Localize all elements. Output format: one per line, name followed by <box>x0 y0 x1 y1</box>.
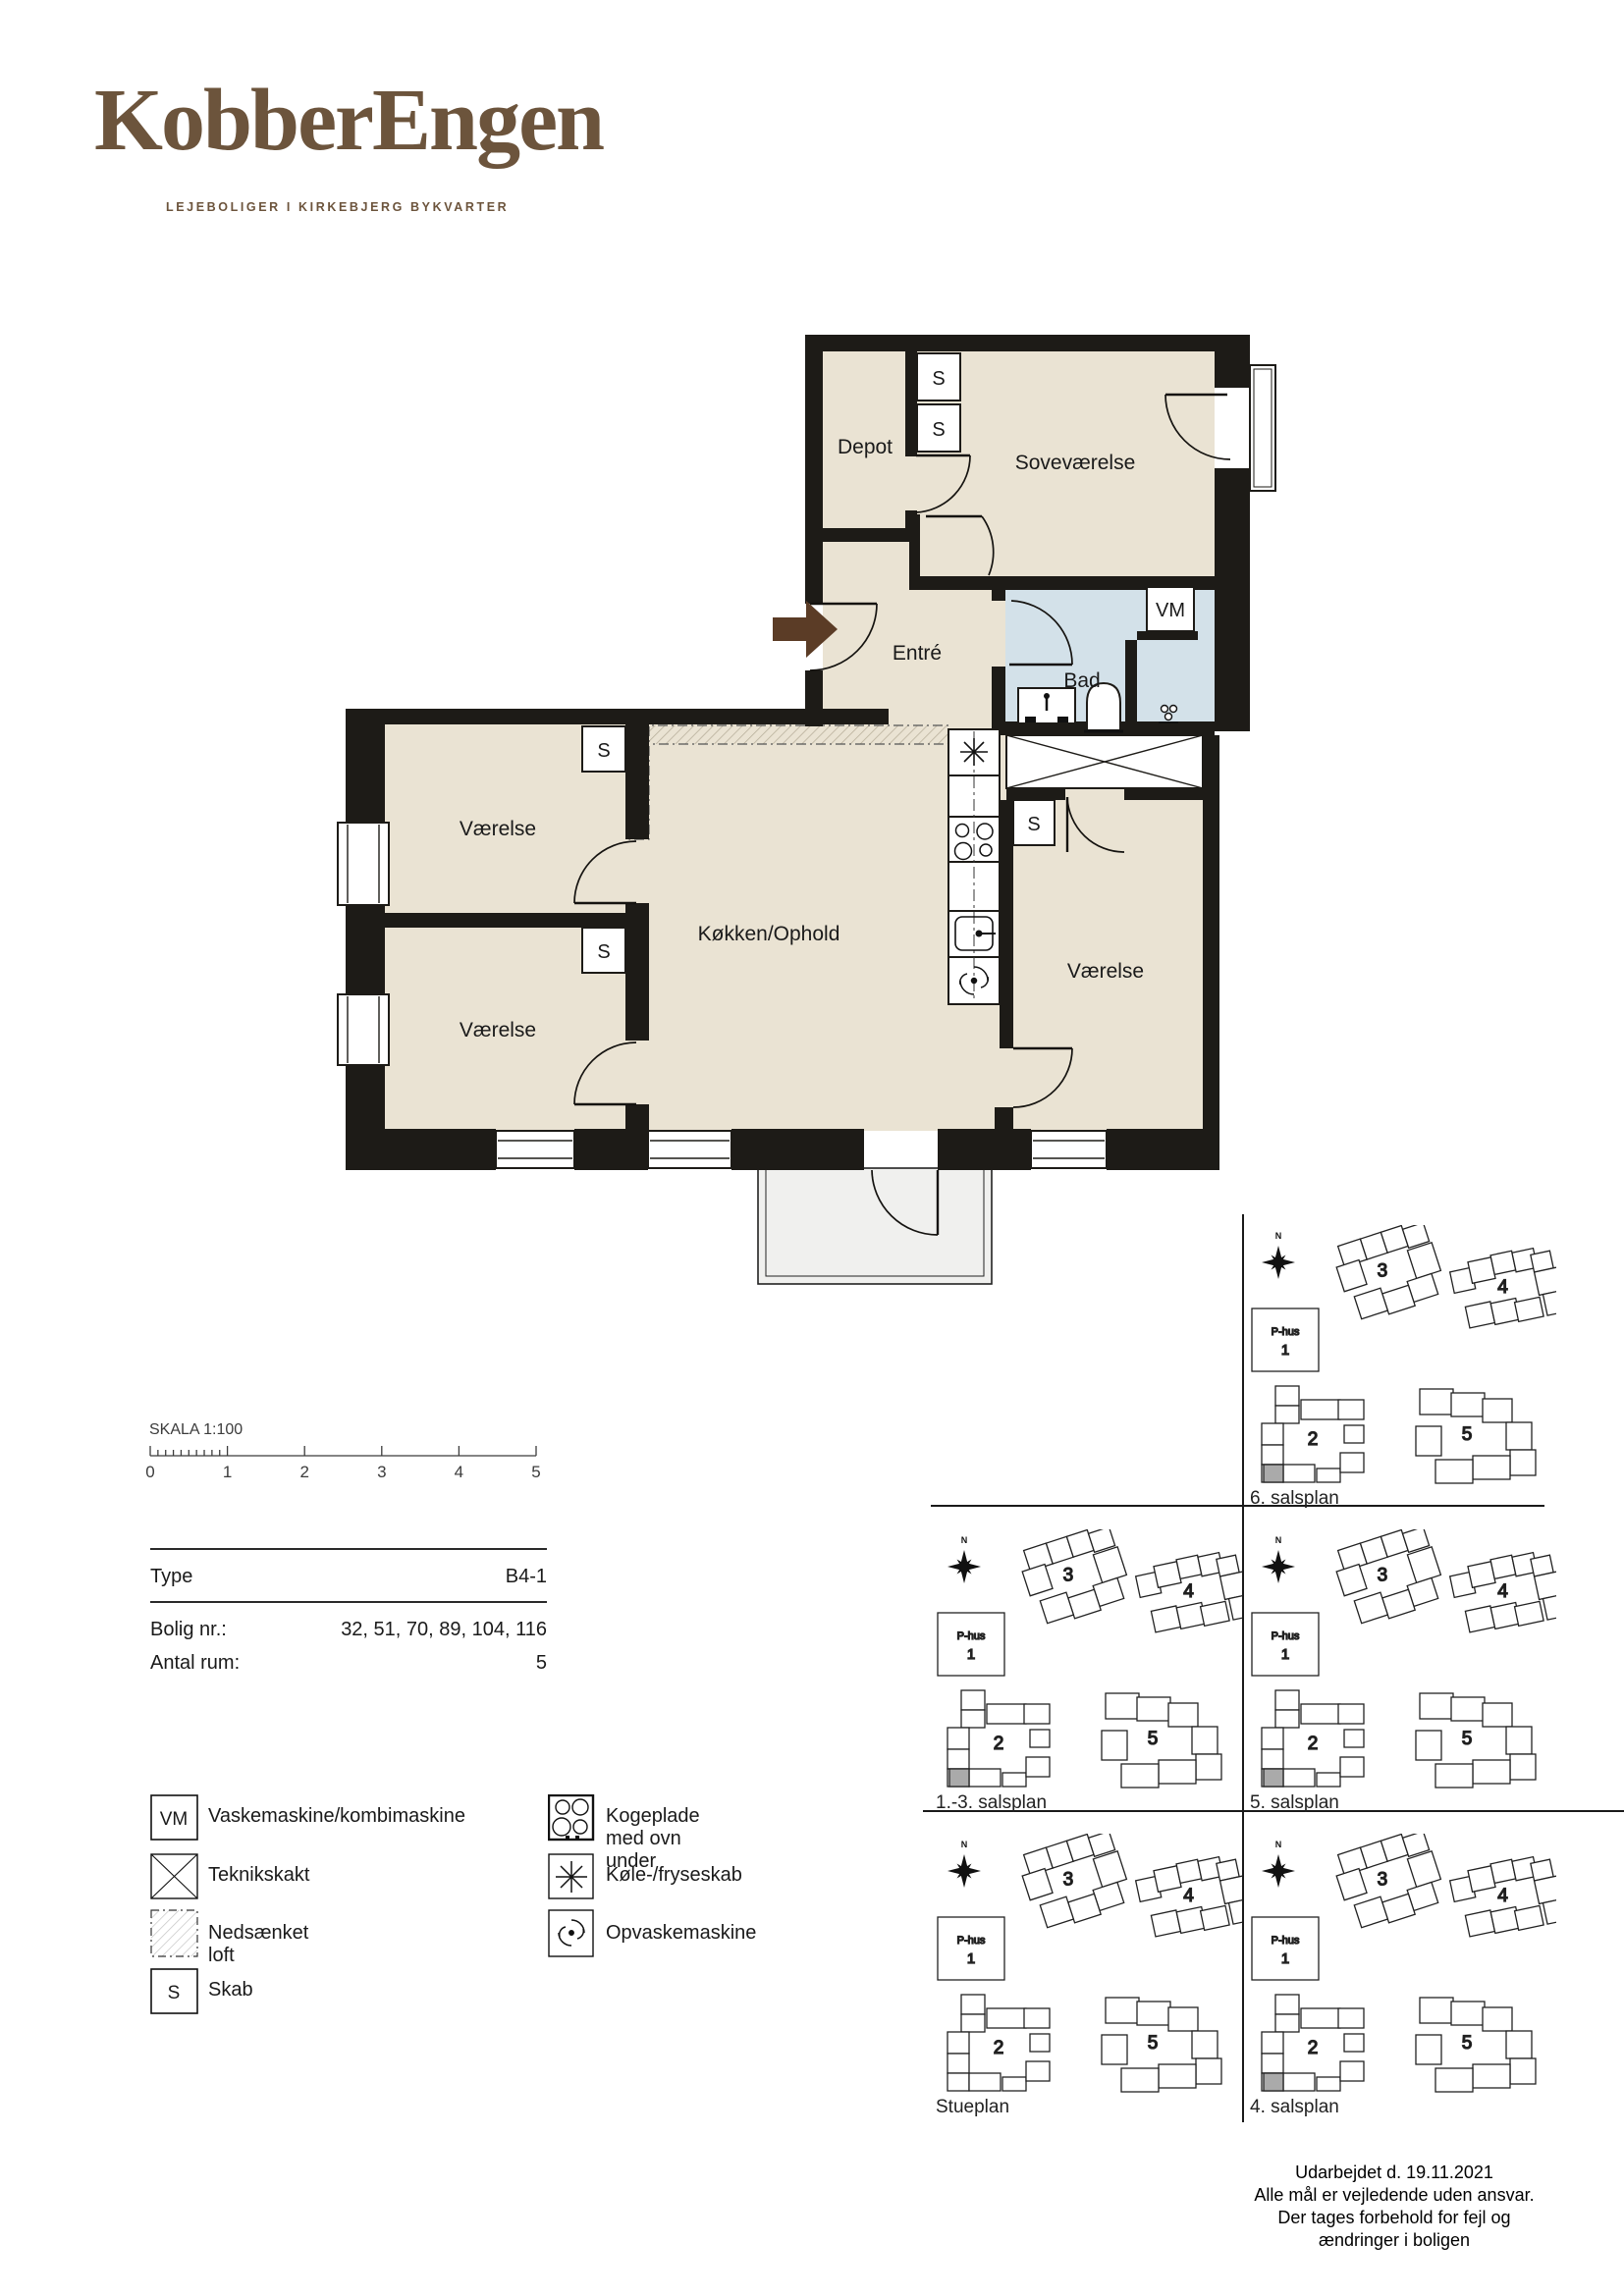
siteplan-label: Stueplan <box>936 2097 1009 2118</box>
scalebar: 012345 <box>137 1435 569 1494</box>
scalebar-tick-label: 2 <box>299 1463 308 1481</box>
svg-text:S: S <box>932 368 945 390</box>
room-label-vaerelse-upper: Værelse <box>460 818 536 840</box>
svg-text:3: 3 <box>1378 1566 1388 1586</box>
svg-text:1: 1 <box>967 1646 975 1663</box>
siteplan-cell: N 3 4 P-hus 1 2 5 1.-3. salsplan <box>928 1529 1242 1824</box>
scalebar-tick-label: 3 <box>377 1463 386 1481</box>
building-phus: P-hus 1 <box>938 1917 1004 1980</box>
siteplan-map: N 3 4 P-hus 1 2 5 <box>1242 1529 1556 1800</box>
svg-text:S: S <box>168 1983 181 2003</box>
teknikskakt-icon <box>150 1853 199 1900</box>
footer-line: ændringer i boligen <box>1168 2229 1620 2252</box>
svg-text:1: 1 <box>1281 1950 1289 1967</box>
svg-text:S: S <box>597 740 610 762</box>
scalebar-tick-label: 0 <box>145 1463 154 1481</box>
scalebar-tick-label: 5 <box>531 1463 540 1481</box>
fridge-freezer-icon <box>960 738 988 766</box>
building-4: 4 <box>1448 1546 1556 1637</box>
svg-text:VM: VM <box>160 1809 189 1830</box>
window-bay-bedroom <box>1250 365 1275 491</box>
nedsaenket-loft-icon <box>150 1909 199 1958</box>
room-label-vaerelse-right: Værelse <box>1067 960 1144 983</box>
svg-text:4: 4 <box>1183 1886 1194 1906</box>
compass-icon: N <box>1262 1840 1295 1888</box>
building-4: 4 <box>1134 1850 1242 1942</box>
svg-text:2: 2 <box>1308 2038 1319 2058</box>
svg-text:N: N <box>1275 1535 1282 1545</box>
building-5: 5 <box>1416 1389 1536 1483</box>
svg-text:3: 3 <box>1378 1261 1388 1282</box>
footer-line: Der tages forbehold for fejl og <box>1168 2207 1620 2229</box>
opvaskemaskine-icon <box>548 1909 595 1958</box>
room-label-sovevaerelse: Soveværelse <box>1015 452 1136 474</box>
svg-text:P-hus: P-hus <box>1272 1326 1300 1338</box>
room-label-vaerelse-lower: Værelse <box>460 1019 536 1041</box>
room-label-entre: Entré <box>893 642 942 665</box>
building-5: 5 <box>1102 1998 1221 2092</box>
legend-label: Vaskemaskine/kombimaskine <box>208 1805 465 1828</box>
svg-text:VM: VM <box>1156 600 1185 621</box>
vm-box-icon: VM <box>150 1794 199 1842</box>
svg-text:S: S <box>932 419 945 441</box>
svg-text:2: 2 <box>1308 1734 1319 1754</box>
table-value: 5 <box>536 1652 547 1675</box>
building-phus: P-hus 1 <box>938 1613 1004 1676</box>
building-2: 2 <box>1262 1386 1364 1482</box>
building-4: 4 <box>1448 1242 1556 1333</box>
legend-label: Nedsænket loft <box>208 1922 308 1967</box>
siteplan-label: 1.-3. salsplan <box>936 1792 1047 1814</box>
kitchen-strip <box>948 729 1000 1004</box>
building-5: 5 <box>1416 1693 1536 1788</box>
svg-text:P-hus: P-hus <box>1272 1935 1300 1947</box>
koleskab-icon <box>548 1853 595 1900</box>
building-3: 3 <box>1016 1529 1134 1629</box>
window-left-lower <box>338 994 389 1065</box>
svg-text:5: 5 <box>1148 1729 1159 1749</box>
table-row-type: Type B4-1 <box>150 1566 547 1591</box>
footer-line: Alle mål er vejledende uden ansvar. <box>1168 2184 1620 2207</box>
skab-box-2: S <box>917 404 960 452</box>
building-2: 2 <box>1262 1995 1364 2091</box>
washing-machine-box: VM <box>1147 587 1194 631</box>
room-label-bad: Bad <box>1063 669 1100 692</box>
svg-text:5: 5 <box>1462 1729 1473 1749</box>
skab-box-5: S <box>1013 800 1055 845</box>
svg-text:N: N <box>961 1840 968 1849</box>
svg-text:P-hus: P-hus <box>957 1630 986 1642</box>
table-label: Type <box>150 1566 192 1588</box>
legend-label: Køle-/fryseskab <box>606 1864 742 1887</box>
table-value: 32, 51, 70, 89, 104, 116 <box>341 1619 547 1641</box>
brand-tagline: LEJEBOLIGER I KIRKEBJERG BYKVARTER <box>166 200 509 214</box>
siteplan-cell: N 3 4 P-hus 1 2 5 4. salsplan <box>1242 1834 1556 2128</box>
legend-label: Skab <box>208 1979 253 2002</box>
window-bottom-1 <box>496 1131 574 1168</box>
siteplan-map: N 3 4 P-hus 1 2 5 <box>928 1834 1242 2105</box>
building-5: 5 <box>1416 1998 1536 2092</box>
siteplan-map: N 3 4 P-hus 1 2 5 <box>928 1529 1242 1800</box>
svg-text:3: 3 <box>1063 1870 1074 1891</box>
building-5: 5 <box>1102 1693 1221 1788</box>
building-phus: P-hus 1 <box>1252 1308 1319 1371</box>
building-4: 4 <box>1134 1546 1242 1637</box>
siteplan-label: 5. salsplan <box>1250 1792 1339 1814</box>
legend-label: Teknikskakt <box>208 1864 309 1887</box>
siteplan-cell: N 3 4 P-hus 1 2 5 5. salsplan <box>1242 1529 1556 1824</box>
siteplan-cell: N 3 4 P-hus 1 2 5 Stueplan <box>928 1834 1242 2128</box>
table-value: B4-1 <box>506 1566 547 1588</box>
table-row-bolig: Bolig nr.: 32, 51, 70, 89, 104, 116 <box>150 1619 547 1644</box>
siteplan-label: 4. salsplan <box>1250 2097 1339 2118</box>
building-2: 2 <box>947 1995 1050 2091</box>
building-3: 3 <box>1330 1834 1448 1934</box>
building-2: 2 <box>1262 1690 1364 1787</box>
scalebar-tick-label: 4 <box>455 1463 463 1481</box>
window-bottom-2 <box>648 1131 731 1168</box>
compass-icon: N <box>947 1840 981 1888</box>
svg-text:5: 5 <box>1148 2033 1159 2054</box>
siteplan-map: N 3 4 P-hus 1 2 5 <box>1242 1834 1556 2105</box>
table-rule-top <box>150 1548 547 1550</box>
kogeplade-icon <box>548 1794 595 1842</box>
skab-icon: S <box>150 1968 199 2015</box>
brand-logo: KobberEngen <box>94 77 603 165</box>
svg-text:1: 1 <box>1281 1342 1289 1359</box>
svg-text:S: S <box>597 941 610 963</box>
window-bottom-3 <box>1031 1131 1107 1168</box>
table-rule-mid <box>150 1601 547 1603</box>
footer-disclaimer: Udarbejdet d. 19.11.2021 Alle mål er vej… <box>1168 2162 1620 2252</box>
svg-text:N: N <box>1275 1231 1282 1241</box>
svg-text:4: 4 <box>1183 1581 1194 1602</box>
svg-text:1: 1 <box>1281 1646 1289 1663</box>
svg-text:P-hus: P-hus <box>1272 1630 1300 1642</box>
svg-text:4: 4 <box>1497 1277 1508 1298</box>
table-row-antal: Antal rum: 5 <box>150 1652 547 1678</box>
building-phus: P-hus 1 <box>1252 1917 1319 1980</box>
svg-text:2: 2 <box>994 2038 1004 2058</box>
table-label: Antal rum: <box>150 1652 240 1675</box>
svg-text:N: N <box>1275 1840 1282 1849</box>
siteplan-cell: N 3 4 P-hus 1 2 5 6. salsplan <box>1242 1225 1556 1520</box>
room-label-kokken: Køkken/Ophold <box>698 923 840 945</box>
skab-box-4: S <box>582 928 625 973</box>
svg-text:5: 5 <box>1462 2033 1473 2054</box>
svg-text:1: 1 <box>967 1950 975 1967</box>
svg-text:3: 3 <box>1063 1566 1074 1586</box>
compass-icon: N <box>1262 1535 1295 1583</box>
footer-line: Udarbejdet d. 19.11.2021 <box>1168 2162 1620 2184</box>
bath-sink-icon <box>1018 688 1075 723</box>
siteplan-map: N 3 4 P-hus 1 2 5 <box>1242 1225 1556 1496</box>
svg-text:2: 2 <box>994 1734 1004 1754</box>
building-3: 3 <box>1330 1225 1448 1325</box>
siteplan-label: 6. salsplan <box>1250 1488 1339 1510</box>
svg-text:2: 2 <box>1308 1429 1319 1450</box>
balcony <box>758 1168 992 1284</box>
compass-icon: N <box>1262 1231 1295 1279</box>
building-2: 2 <box>947 1690 1050 1787</box>
building-4: 4 <box>1448 1850 1556 1942</box>
svg-text:3: 3 <box>1378 1870 1388 1891</box>
svg-text:N: N <box>961 1535 968 1545</box>
building-phus: P-hus 1 <box>1252 1613 1319 1676</box>
room-label-depot: Depot <box>838 436 893 458</box>
legend-label: Opvaskemaskine <box>606 1922 756 1945</box>
legend-label: Kogeplade med ovn under <box>606 1805 700 1873</box>
svg-text:S: S <box>1027 814 1040 835</box>
building-3: 3 <box>1330 1529 1448 1629</box>
svg-text:4: 4 <box>1497 1581 1508 1602</box>
skab-box-3: S <box>582 726 625 772</box>
floor-plan: S S S S S VM Depot Soveværelse Entré Bad <box>334 314 1296 1296</box>
table-label: Bolig nr.: <box>150 1619 227 1641</box>
svg-text:5: 5 <box>1462 1424 1473 1445</box>
scalebar-tick-label: 1 <box>223 1463 232 1481</box>
svg-text:P-hus: P-hus <box>957 1935 986 1947</box>
skab-box-1: S <box>917 353 960 400</box>
window-left-upper <box>338 823 389 905</box>
compass-icon: N <box>947 1535 981 1583</box>
building-3: 3 <box>1016 1834 1134 1934</box>
svg-text:4: 4 <box>1497 1886 1508 1906</box>
teknikskakt-symbol <box>1006 735 1203 788</box>
